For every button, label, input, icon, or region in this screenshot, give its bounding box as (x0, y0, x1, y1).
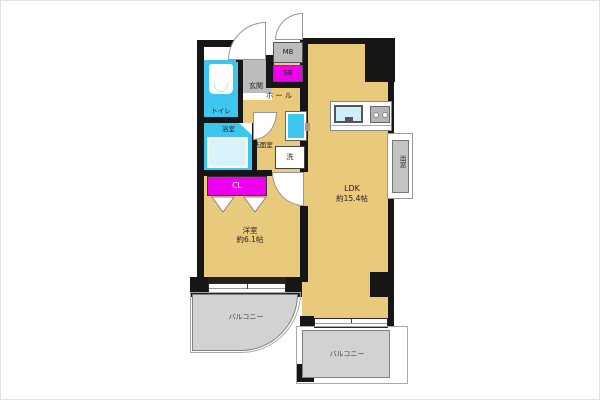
bedroom-label: 洋室 約6.1帖 (215, 226, 285, 245)
wall-bedroom-ldk (300, 206, 308, 282)
closet-label: CL (208, 181, 266, 190)
meter-box-door-arc (275, 13, 303, 40)
meter-box: MB (273, 42, 303, 63)
column-ldk-bottomleft (300, 316, 314, 326)
balcony-left-label: バルコニー (211, 313, 281, 322)
toilet-room: トイレ (204, 60, 238, 117)
balcony-left: バルコニー (192, 294, 298, 351)
toilet-icon (209, 64, 233, 94)
ldk-label: LDK 約15.4帖 (317, 184, 387, 203)
ldk-size: 約15.4帖 (317, 194, 387, 203)
bedroom-size: 約6.1帖 (215, 235, 285, 244)
closet: CL (207, 176, 267, 196)
wall-right-bottom (388, 297, 394, 327)
wall-left (197, 40, 204, 297)
washer-space: 洗 (275, 146, 305, 169)
hall-label: ホール (252, 91, 308, 100)
ldk-name: LDK (317, 184, 387, 194)
washer-label: 洗 (276, 153, 304, 162)
wall-under-shoebox (272, 82, 302, 88)
balcony-right: バルコニー (302, 330, 390, 378)
meter-box-label: MB (274, 48, 302, 57)
wall-toilet-hall (238, 58, 243, 120)
toilet-label: トイレ (204, 107, 238, 115)
closet-folding-doors (206, 196, 272, 214)
balcony-right-label: バルコニー (312, 350, 382, 359)
wall-right-mid (388, 198, 394, 274)
bathtub (207, 137, 248, 168)
kitchen-counter (330, 101, 392, 131)
vanity-sink (286, 112, 306, 140)
bedroom-name: 洋室 (215, 226, 285, 235)
bay-window: 出窓 (387, 133, 413, 199)
floorplan: 玄関 トイレ 浴室 MB SB ホール 洗面室 (0, 0, 600, 400)
column-right-lower (370, 272, 394, 297)
shoe-box-label: SB (274, 69, 302, 78)
wall-toilet-bath (197, 117, 243, 123)
vanity-faucet (305, 123, 310, 131)
column-topright (365, 38, 395, 82)
bay-window-label: 出窓 (398, 155, 406, 168)
shoe-box: SB (273, 65, 303, 82)
kitchen-stove (370, 106, 390, 123)
kitchen-sink (334, 105, 363, 123)
entrance-door-arc (228, 22, 266, 60)
